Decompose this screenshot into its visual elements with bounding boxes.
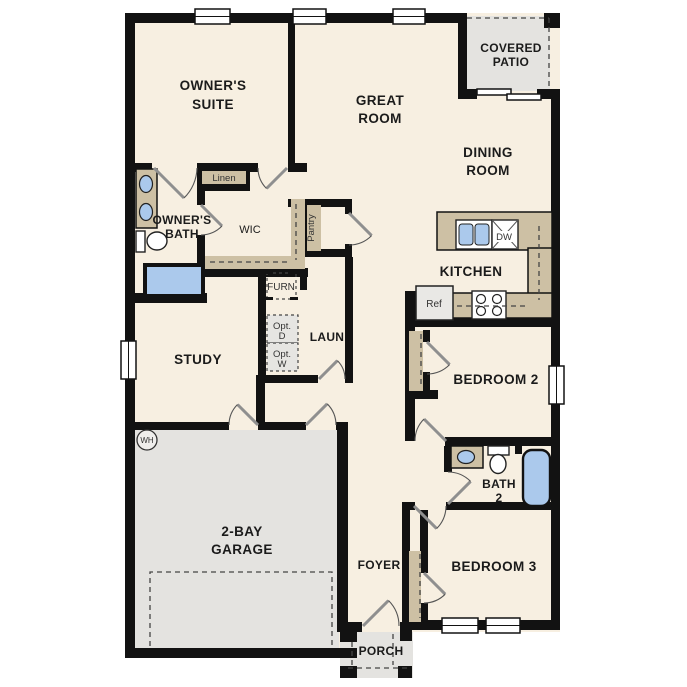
toilet-tank-icon <box>488 446 509 455</box>
bath2-sink-icon <box>458 451 475 464</box>
owners-bath-label: BATH <box>165 227 199 241</box>
bath-sink-icon <box>140 204 153 221</box>
window <box>293 9 326 24</box>
laundry-label: LAUN <box>310 330 345 344</box>
owners-suite-label: SUITE <box>192 97 234 112</box>
porch-label: PORCH <box>359 644 404 658</box>
window <box>486 618 520 633</box>
dishwasher-label: DW <box>496 232 512 243</box>
sink-basin-icon <box>475 224 489 245</box>
shower-icon <box>145 265 203 296</box>
kitchen-label: KITCHEN <box>440 264 503 279</box>
covered-patio-label: COVERED <box>480 41 541 55</box>
window <box>195 9 230 24</box>
wic-label: WIC <box>239 224 260 236</box>
covered-patio-label: PATIO <box>493 55 529 69</box>
window <box>393 9 425 24</box>
foyer-label: FOYER <box>358 558 401 572</box>
furnace-label: FURN <box>267 282 295 293</box>
study-label: STUDY <box>174 352 222 367</box>
linen-label: Linen <box>212 173 235 184</box>
window <box>549 366 564 404</box>
great-room-label: ROOM <box>358 111 402 126</box>
dining-room-label: DINING <box>463 145 513 160</box>
opt-dryer-label: D <box>279 331 286 342</box>
bathtub-icon <box>523 450 550 506</box>
garage-floor <box>135 430 339 650</box>
toilet-bowl-icon <box>490 455 506 474</box>
dining-room-label: ROOM <box>466 163 510 178</box>
great-room-label: GREAT <box>356 93 405 108</box>
bath-sink-icon <box>140 176 153 193</box>
garage-label: 2-BAY <box>221 524 262 539</box>
water-heater-label: WH <box>140 436 154 445</box>
wic-shelf-right <box>291 199 305 269</box>
garage-label: GARAGE <box>211 542 273 557</box>
pantry-label: Pantry <box>306 214 317 242</box>
floor-plan-drawing: OWNER'S SUITE GREAT ROOM COVERED PATIO D… <box>0 0 687 687</box>
window <box>442 618 478 633</box>
toilet-bowl-icon <box>147 232 167 250</box>
stove-icon <box>472 291 506 319</box>
owners-bath-label: OWNER'S <box>153 213 212 227</box>
opt-washer-label: W <box>278 359 287 370</box>
floor-plan: OWNER'S SUITE GREAT ROOM COVERED PATIO D… <box>0 0 687 687</box>
bedroom2-label: BEDROOM 2 <box>453 372 538 387</box>
toilet-tank-icon <box>136 231 145 252</box>
bedroom3-label: BEDROOM 3 <box>451 559 536 574</box>
window <box>121 341 136 379</box>
bedroom3-closet-shelf <box>409 551 421 622</box>
sink-basin-icon <box>459 224 473 245</box>
owners-suite-label: OWNER'S <box>180 78 247 93</box>
bath2-label: BATH <box>482 477 516 491</box>
bath2-label: 2 <box>496 491 503 505</box>
fridge-label: Ref <box>426 299 442 310</box>
